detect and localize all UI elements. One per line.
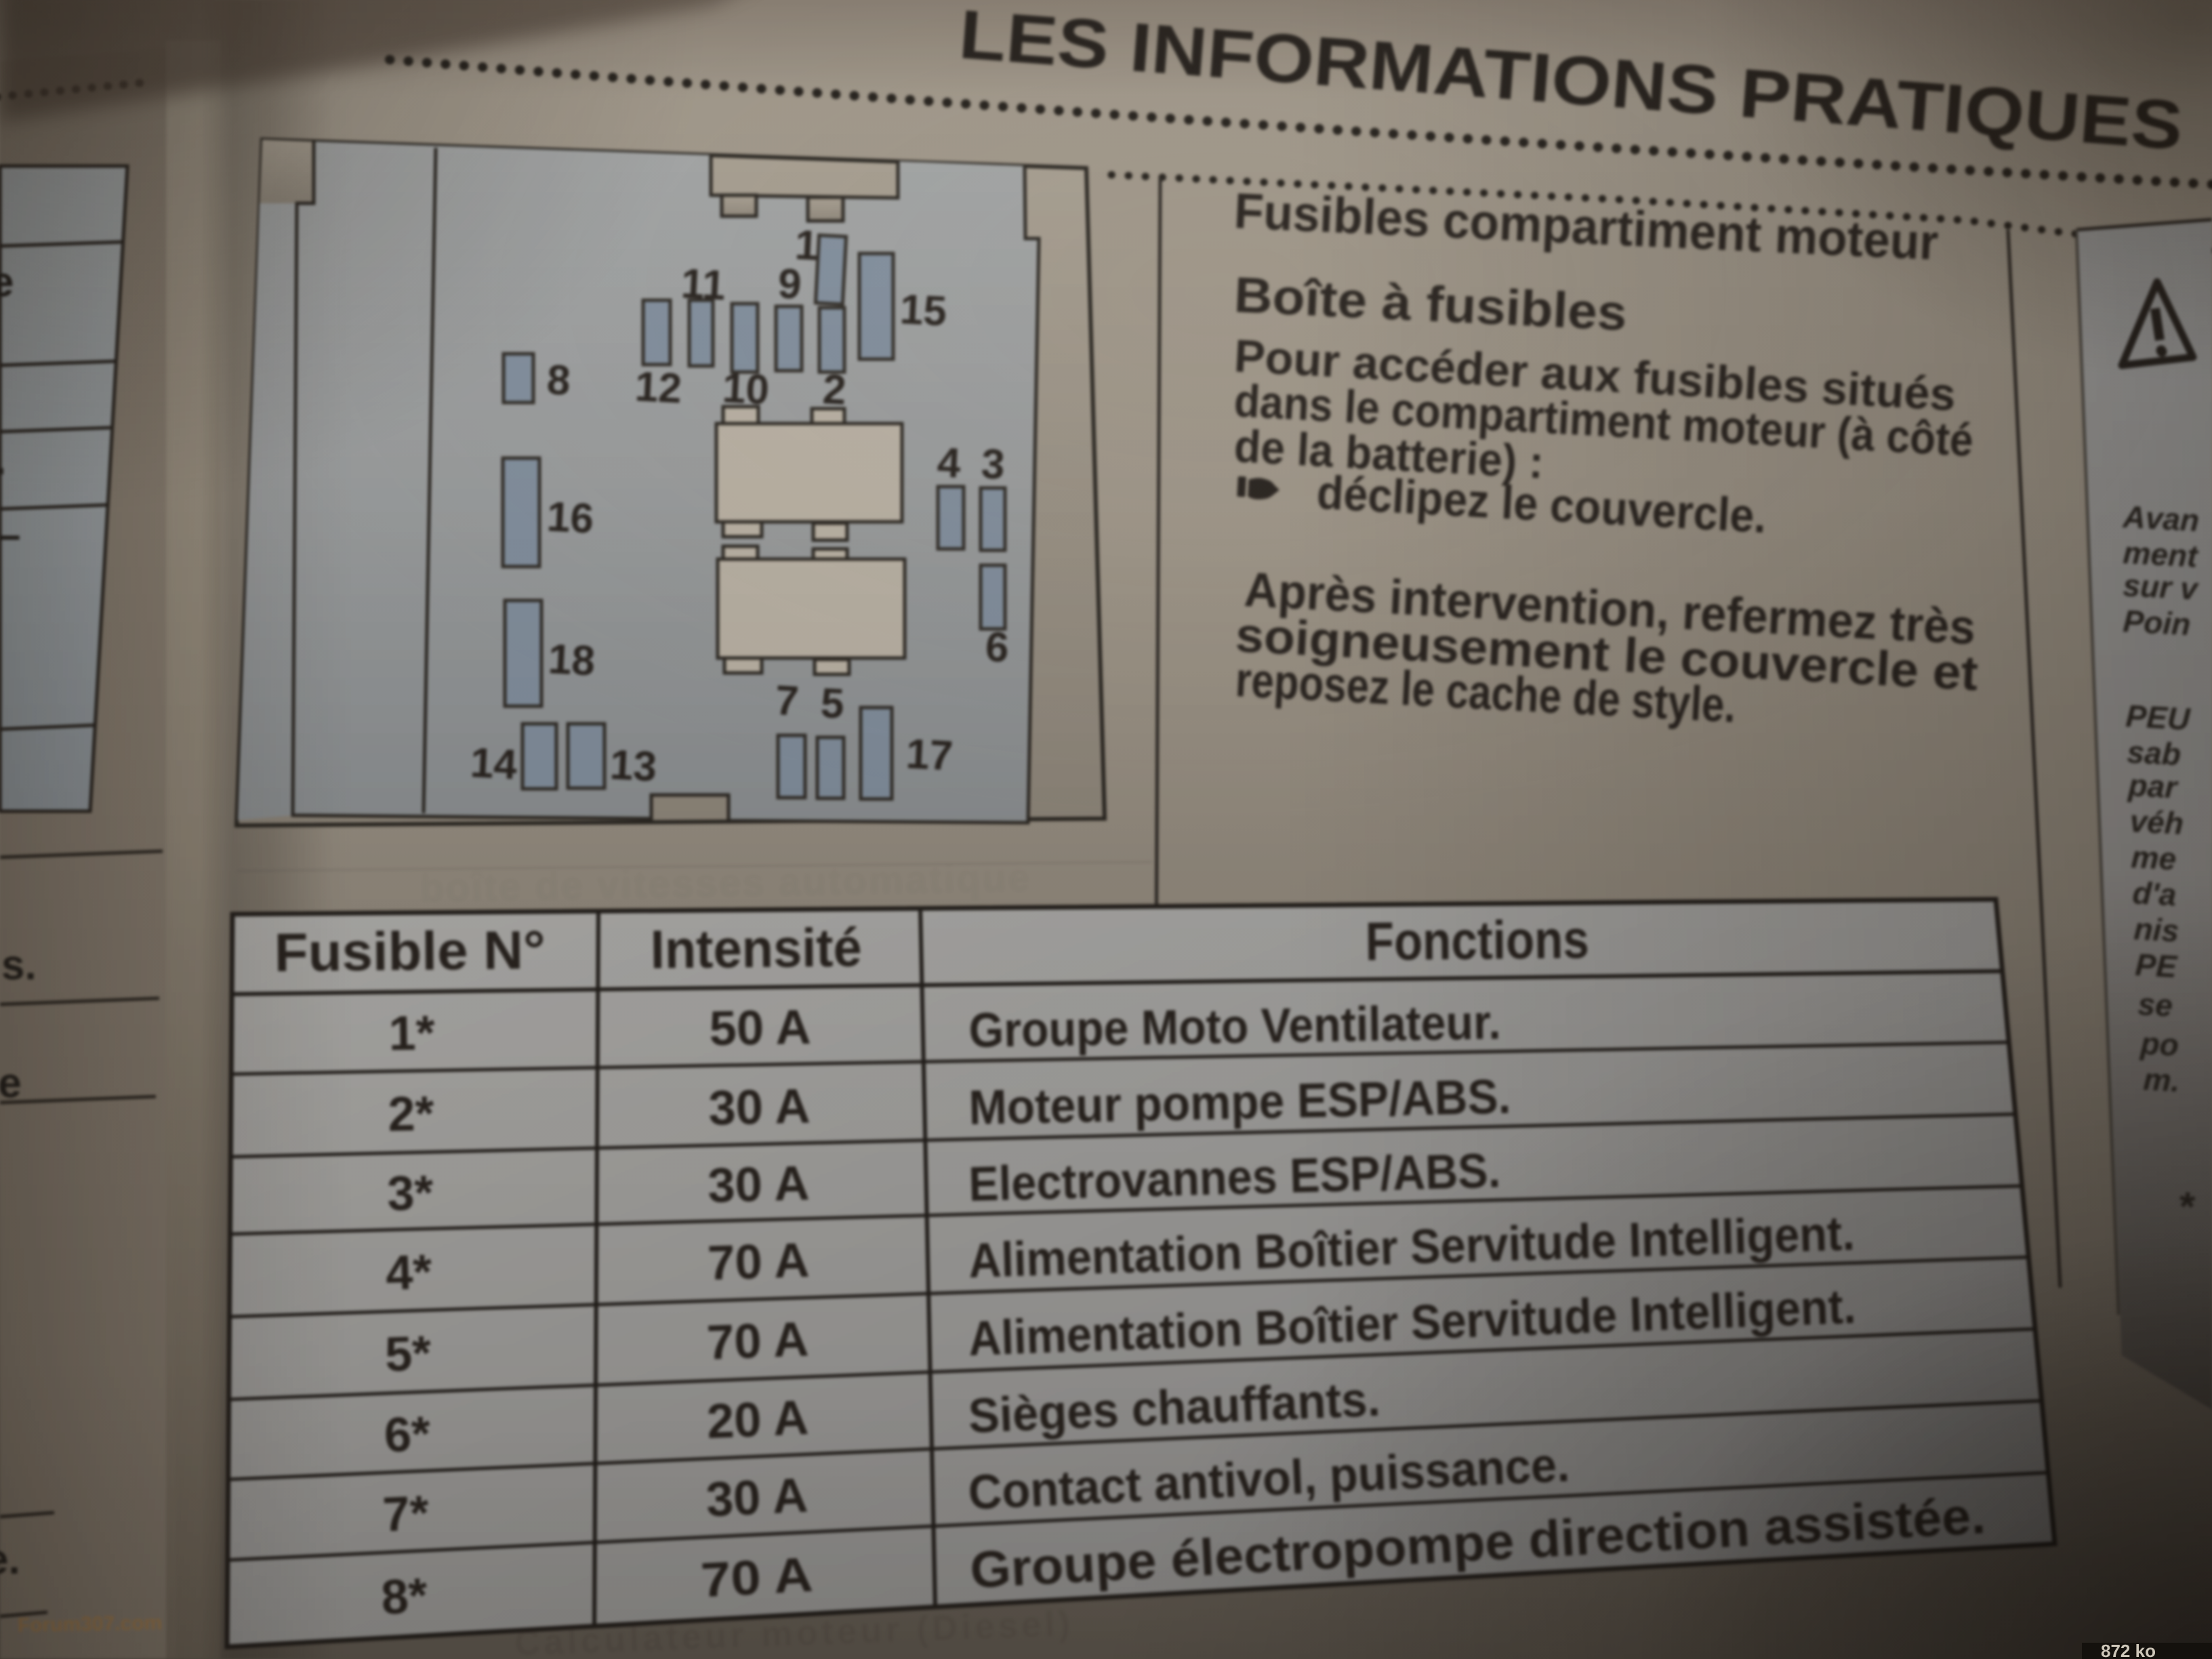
svg-text:872 ko: 872 ko	[2101, 1641, 2156, 1659]
